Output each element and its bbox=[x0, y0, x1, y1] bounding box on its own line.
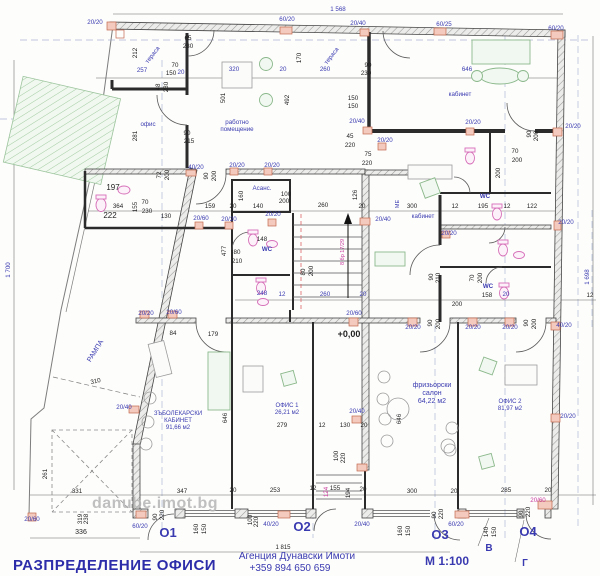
dim-label: 20 bbox=[359, 203, 366, 210]
dim-label: 253 bbox=[270, 487, 281, 494]
dim-label: 160 bbox=[397, 525, 404, 536]
dim-label: 45 bbox=[347, 133, 354, 140]
dim-label: 60/20 bbox=[548, 25, 564, 32]
dim-label: 20 bbox=[451, 488, 458, 495]
dim-label: 646 bbox=[396, 413, 403, 424]
dim-label: 90 bbox=[523, 319, 530, 326]
room-label-wc-3: WC bbox=[483, 283, 494, 290]
dim-label: 20 bbox=[360, 486, 367, 493]
dim-label: 200 bbox=[164, 169, 171, 180]
dim-label: 12 bbox=[319, 422, 326, 429]
dim-label: 230 bbox=[361, 70, 372, 77]
axis-label-O4: О4 bbox=[519, 524, 537, 539]
dim-label: 20/20 bbox=[465, 119, 481, 126]
dim-label: 20/60 bbox=[166, 309, 182, 316]
overall-dim-right: 1 698 bbox=[584, 269, 591, 285]
dim-label: 195 bbox=[478, 203, 489, 210]
dim-label: 20/60 bbox=[530, 497, 546, 504]
room-label-wc-1: WC bbox=[480, 193, 491, 200]
dim-label: 60/20 bbox=[279, 16, 295, 23]
agency-name: Агенция Дунавски Имоти bbox=[239, 551, 355, 562]
room-label-cabinet-top: кабинет bbox=[449, 91, 472, 98]
dim-label: 179 bbox=[208, 331, 219, 338]
dim-label: 90 bbox=[365, 62, 372, 69]
dim-label: 261 bbox=[42, 468, 49, 479]
dim-label: 40/20 bbox=[556, 322, 572, 329]
dim-label: 197 bbox=[106, 183, 120, 192]
dim-label: 215 bbox=[184, 138, 195, 145]
dim-label: 200 bbox=[211, 170, 218, 181]
dim-label: 20/40 bbox=[349, 408, 365, 415]
overall-dim-top: 1 568 bbox=[330, 6, 346, 13]
dim-label: 90 bbox=[526, 130, 533, 137]
dim-label: 220 bbox=[345, 142, 356, 149]
dim-label: 155 bbox=[330, 485, 341, 492]
dim-label: 200 bbox=[533, 130, 540, 141]
dim-label: 336 bbox=[75, 529, 87, 536]
dim-label: 170 bbox=[296, 52, 303, 63]
dim-label: 155 bbox=[132, 201, 139, 212]
dim-label: 248 bbox=[257, 290, 268, 297]
inner-walls bbox=[85, 32, 558, 509]
dim-label: 20 bbox=[230, 487, 237, 494]
floor-plan-drawing: терасатерасаофисработнопомещениекабинетк… bbox=[0, 0, 600, 576]
dim-label: 200 bbox=[279, 198, 290, 205]
room-label-terrace-2: тераса bbox=[323, 46, 341, 66]
dim-label: 20/40 bbox=[354, 521, 370, 528]
dim-label: 20 bbox=[178, 69, 185, 76]
dim-label: 81,97 м2 bbox=[498, 406, 523, 412]
dim-label: 220 bbox=[525, 506, 532, 517]
dim-label: 331 bbox=[72, 488, 83, 495]
dim-label: 12 bbox=[279, 291, 286, 298]
dim-label: 200 bbox=[308, 265, 315, 276]
dim-label: 64,22 м2 bbox=[418, 398, 446, 405]
dim-label: 20/20 bbox=[87, 19, 103, 26]
stair-note: 8 бр 17/29 bbox=[340, 239, 346, 265]
dim-label: 65 bbox=[185, 35, 192, 42]
dim-label: 150 bbox=[166, 70, 177, 77]
dim-label: 150 bbox=[348, 103, 359, 110]
dim-label: 20/40 bbox=[116, 404, 132, 411]
dim-label: 90 bbox=[428, 273, 435, 280]
dim-label: 122 bbox=[527, 203, 538, 210]
dim-label: 364 bbox=[113, 203, 124, 210]
dim-label: 200 bbox=[531, 318, 538, 329]
agency-phone: +359 894 650 659 bbox=[250, 563, 331, 574]
dim-label: 230 bbox=[163, 81, 170, 92]
dim-label: 130 bbox=[161, 213, 172, 220]
dim-label: 347 bbox=[177, 488, 188, 495]
axis-label-O2: О2 bbox=[293, 519, 310, 534]
dim-label: 194 bbox=[345, 487, 352, 498]
room-label-ramp: РАМПА bbox=[86, 339, 105, 364]
dim-label: 160 bbox=[193, 523, 200, 534]
dim-label: 150 bbox=[201, 523, 208, 534]
dim-label: 12 bbox=[587, 292, 594, 299]
dim-label: 281 bbox=[132, 130, 139, 141]
dim-label: 20/20 bbox=[441, 230, 457, 237]
dim-label: 26,21 м2 bbox=[275, 410, 300, 416]
dim-label: 212 bbox=[132, 47, 139, 58]
dim-label: 200 bbox=[512, 157, 523, 164]
dim-label: 60/20 bbox=[132, 523, 148, 530]
furniture bbox=[140, 40, 537, 469]
dim-label: 200 bbox=[452, 301, 463, 308]
dim-label: 20/40 bbox=[375, 216, 391, 223]
dim-label: 200 bbox=[435, 318, 442, 329]
dim-label: 257 bbox=[137, 67, 148, 74]
room-label-elevator: Асанс. bbox=[253, 185, 272, 192]
dim-label: 222 bbox=[103, 211, 117, 220]
room-label-terrace-1: тераса bbox=[144, 45, 162, 65]
scale-label: М 1:100 bbox=[425, 554, 469, 568]
dim-label: 100 bbox=[333, 450, 340, 461]
dim-label: 220 bbox=[438, 508, 445, 519]
dim-label: 210 bbox=[435, 272, 442, 283]
dim-label: 20/20 bbox=[138, 310, 154, 317]
dim-label: 20 bbox=[361, 422, 368, 429]
dim-label: 90 bbox=[203, 172, 210, 179]
dim-label: 20/20 bbox=[265, 211, 281, 218]
dim-label: 90 bbox=[431, 511, 438, 518]
dim-label: 20/40 bbox=[350, 20, 366, 27]
dim-label: 90 bbox=[518, 510, 525, 517]
dim-label: 150 bbox=[491, 526, 498, 537]
room-label-office1: ОФИС 1 bbox=[276, 403, 300, 409]
dim-label: 90 bbox=[152, 513, 159, 520]
dim-label: 260 bbox=[318, 202, 329, 209]
dim-label: 20/20 bbox=[502, 324, 518, 331]
dim-label: 12 bbox=[310, 485, 317, 492]
dim-label: 84 bbox=[170, 330, 177, 337]
dim-label: 80 bbox=[234, 249, 241, 256]
dim-label: 20 bbox=[280, 66, 287, 73]
room-label-dental: ЗЪБОЛЕКАРСКИ bbox=[154, 411, 202, 417]
dim-label: 40/20 bbox=[263, 521, 279, 528]
dim-label: 20 bbox=[503, 291, 510, 298]
dim-label: 477 bbox=[221, 245, 228, 256]
dim-label: 70 bbox=[512, 148, 519, 155]
dim-label: 220 bbox=[253, 516, 260, 527]
stairs bbox=[293, 213, 362, 499]
dim-label: 220 bbox=[340, 452, 347, 463]
dim-label: 90 bbox=[427, 319, 434, 326]
stair-direction-arrow bbox=[344, 213, 352, 224]
dim-label: 20/60 bbox=[24, 516, 40, 523]
dim-label: 80 bbox=[300, 268, 307, 275]
dim-label: 310 bbox=[90, 377, 102, 386]
overall-dim-left: 1 700 bbox=[5, 262, 12, 278]
dim-label: МЕ bbox=[395, 200, 401, 209]
dim-label: 260 bbox=[320, 291, 331, 298]
dim-label: 20 bbox=[545, 487, 552, 494]
room-label-workroom: работно bbox=[225, 119, 249, 126]
dim-label: салон bbox=[422, 390, 441, 397]
dim-label: 130 bbox=[340, 422, 351, 429]
dim-label: 220 bbox=[362, 160, 373, 167]
dim-label: 20/40 bbox=[349, 118, 365, 125]
room-label-salon: фризьорски bbox=[413, 382, 452, 389]
dim-label: 72 bbox=[156, 171, 163, 178]
dim-label: 150 bbox=[348, 95, 359, 102]
dim-label: 158 bbox=[482, 292, 493, 299]
dim-label: 70 bbox=[172, 62, 179, 69]
dim-label: КАБИНЕТ bbox=[164, 418, 192, 424]
dim-label: 90 bbox=[184, 130, 191, 137]
dim-label: 75 bbox=[365, 151, 372, 158]
room-label-office2: ОФИС 2 bbox=[499, 399, 523, 405]
dim-label: 20/20 bbox=[465, 324, 481, 331]
dim-label: 501 bbox=[220, 92, 227, 103]
dim-label: 200 bbox=[477, 272, 484, 283]
dim-label: 20/20 bbox=[560, 413, 576, 420]
dim-label: 20/20 bbox=[377, 137, 393, 144]
dim-label: 126 bbox=[352, 189, 359, 200]
dim-label: 20/20 bbox=[565, 123, 581, 130]
dim-label: 150 bbox=[405, 525, 412, 536]
room-label-cabinet-mid: кабинет bbox=[412, 213, 435, 220]
dim-label: 48 bbox=[155, 83, 162, 90]
dim-label: 148 bbox=[257, 236, 268, 243]
drawing-title: РАЗПРЕДЕЛЕНИЕ ОФИСИ bbox=[13, 557, 216, 574]
dim-label: 238 bbox=[83, 513, 90, 524]
dim-label: 20 bbox=[360, 291, 367, 298]
dim-label: 91,66 м2 bbox=[166, 425, 191, 431]
dim-label: 20/20 bbox=[221, 216, 237, 223]
dim-label: 100 bbox=[281, 191, 292, 198]
axis-label-V: В bbox=[485, 543, 492, 554]
room-label-office: офис bbox=[140, 121, 155, 128]
dim-label: 210 bbox=[232, 258, 243, 265]
axis-label-G: Г bbox=[522, 558, 528, 569]
dim-label: 20/20 bbox=[405, 324, 421, 331]
dim-label: 230 bbox=[183, 43, 194, 50]
watermark: danube.imot.bg bbox=[92, 495, 218, 512]
dim-label: 646 bbox=[462, 66, 473, 73]
dim-label: 260 bbox=[320, 66, 331, 73]
terrace-decking bbox=[3, 76, 120, 184]
dim-label: 70 bbox=[469, 274, 476, 281]
dim-label: 12 bbox=[452, 203, 459, 210]
dim-label: 20/20 bbox=[229, 162, 245, 169]
dim-label: 20/20 bbox=[558, 219, 574, 226]
level-mark: +0,00 bbox=[338, 329, 361, 339]
axis-label-O1: О1 bbox=[159, 525, 176, 540]
dim-label: 20/60 bbox=[346, 310, 362, 317]
dim-label: 300 bbox=[407, 488, 418, 495]
floor-plan: терасатерасаофисработнопомещениекабинетк… bbox=[0, 0, 600, 576]
dim-label: 160 bbox=[238, 190, 245, 201]
dim-label: 40/20 bbox=[188, 164, 204, 171]
axis-label-O3: О3 bbox=[431, 527, 448, 542]
dim-label: 646 bbox=[222, 412, 229, 423]
dim-label: 70 bbox=[142, 199, 149, 206]
dim-label: 60/25 bbox=[436, 21, 452, 28]
dim-label: 20/60 bbox=[193, 215, 209, 222]
dim-label: 285 bbox=[501, 487, 512, 494]
dim-label: 159 bbox=[205, 203, 216, 210]
dim-label: 140 bbox=[483, 526, 490, 537]
dim-label: 492 bbox=[284, 94, 291, 105]
room-label-wc-2: WC bbox=[262, 246, 273, 253]
dim-label: помещение bbox=[220, 126, 254, 133]
dim-label: 140 bbox=[253, 203, 264, 210]
dim-label: 230 bbox=[142, 208, 153, 215]
dim-label: 20/20 bbox=[264, 162, 280, 169]
dim-label: 300 bbox=[407, 203, 418, 210]
dim-label: 12 bbox=[504, 203, 511, 210]
dim-label: 320 bbox=[229, 66, 240, 73]
dim-label: 20 bbox=[230, 203, 237, 210]
dim-label: 200 bbox=[495, 167, 502, 178]
dim-label: 279 bbox=[277, 422, 288, 429]
dim-label: 60/20 bbox=[448, 521, 464, 528]
